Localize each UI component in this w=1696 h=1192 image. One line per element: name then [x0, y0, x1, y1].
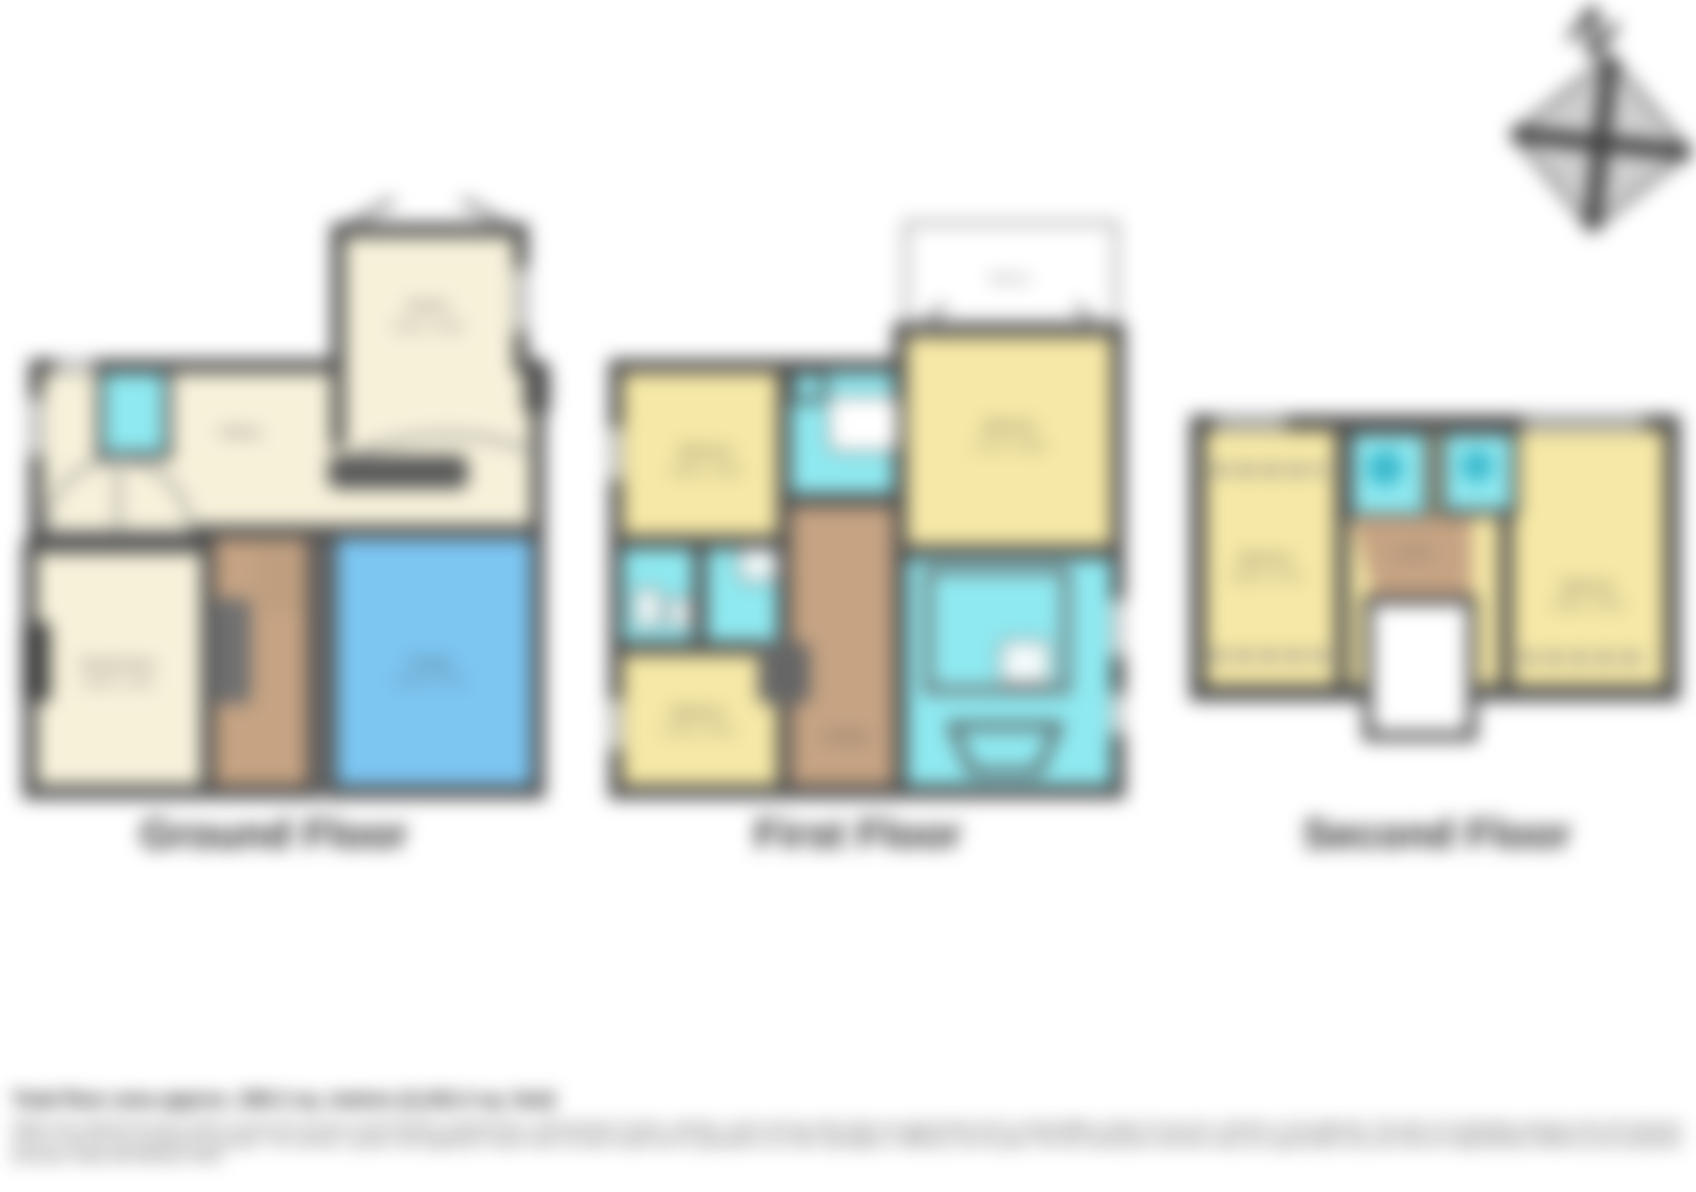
svg-text:3.96m x 3.35m: 3.96m x 3.35m — [82, 677, 155, 689]
svg-text:Garage: Garage — [408, 654, 451, 669]
svg-text:Hallway: Hallway — [219, 425, 261, 439]
svg-text:5.18m x 4.57m: 5.18m x 4.57m — [394, 675, 467, 687]
svg-text:Landing: Landing — [1394, 548, 1430, 559]
svg-text:Dining Room: Dining Room — [80, 656, 155, 671]
svg-text:Kitchen: Kitchen — [406, 298, 449, 313]
svg-text:Bedroom: Bedroom — [680, 443, 733, 458]
svg-text:3.66m x 2.95m: 3.66m x 2.95m — [392, 321, 465, 333]
svg-text:Balcony: Balcony — [990, 273, 1030, 285]
svg-text:Second Floor: Second Floor — [1303, 810, 1571, 857]
svg-text:First Floor: First Floor — [754, 810, 962, 857]
svg-text:Bedroom: Bedroom — [672, 704, 725, 719]
svg-text:Bedroom: Bedroom — [984, 418, 1037, 433]
svg-text:2.74m x 2.44m: 2.74m x 2.44m — [662, 725, 735, 737]
svg-text:3.35m x 2.74m: 3.35m x 2.74m — [1230, 571, 1303, 583]
svg-text:Ground Floor: Ground Floor — [140, 810, 408, 857]
svg-text:3.66m x 3.35m: 3.66m x 3.35m — [670, 465, 743, 477]
svg-text:Bedroom: Bedroom — [1562, 578, 1615, 593]
svg-text:Landing: Landing — [824, 729, 867, 743]
svg-text:4.27m x 3.96m: 4.27m x 3.96m — [974, 440, 1047, 452]
svg-text:N: N — [1556, 0, 1630, 72]
svg-text:Bedroom: Bedroom — [1240, 550, 1293, 565]
svg-text:3.96m x 3.05m: 3.96m x 3.05m — [1552, 599, 1625, 611]
